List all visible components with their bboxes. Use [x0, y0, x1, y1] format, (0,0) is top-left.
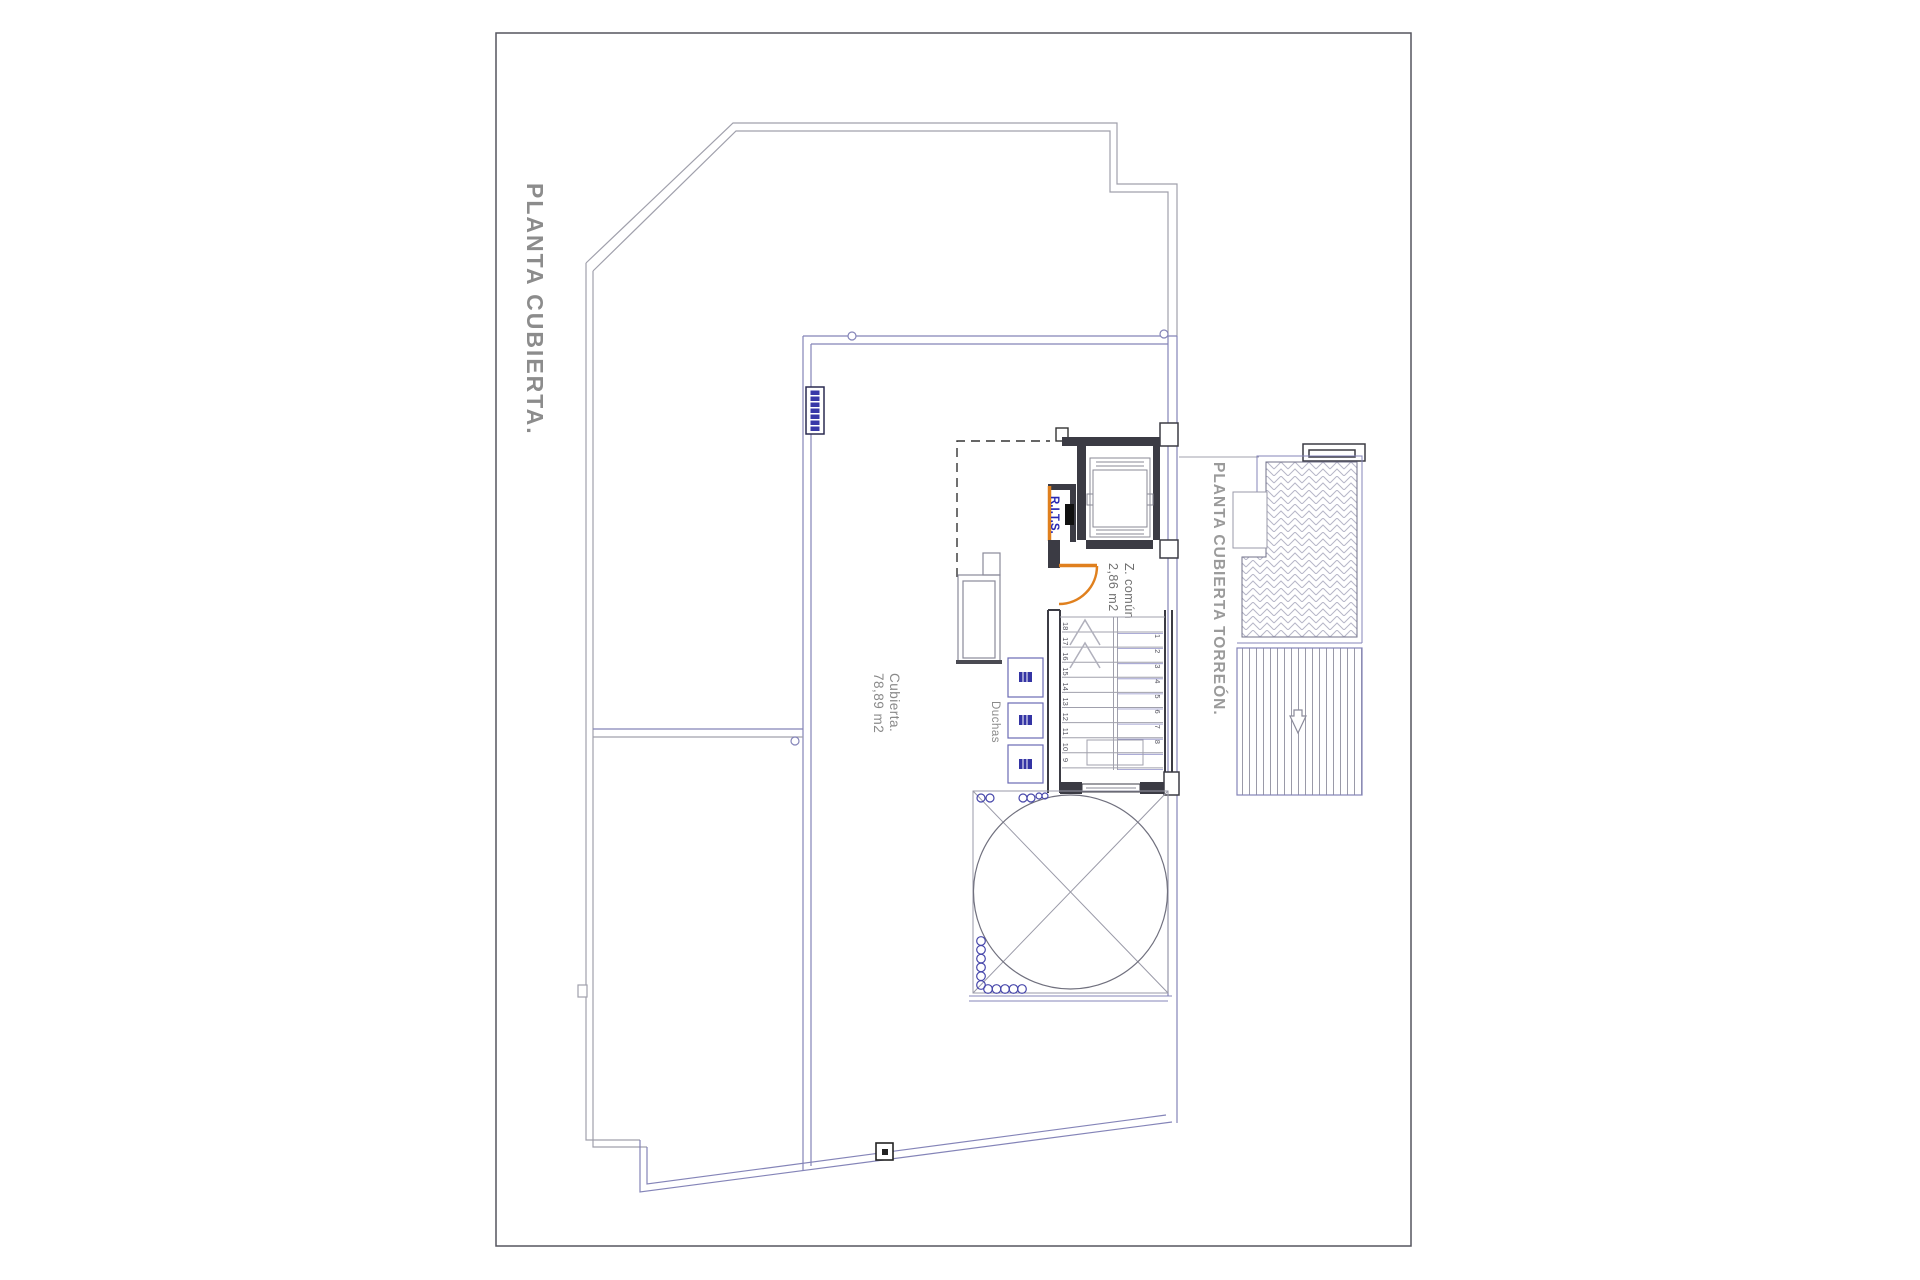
stair-number: 13 [1061, 698, 1070, 706]
vent-grille-cell [811, 397, 820, 402]
shower-drain-icon [1019, 759, 1032, 769]
stair-number: 15 [1061, 667, 1070, 675]
elevator-wall-top [1062, 437, 1160, 446]
stair-number: 17 [1061, 637, 1070, 645]
stair-number: 11 [1061, 728, 1070, 736]
stair-number: 4 [1153, 679, 1162, 683]
shower-drain-icon [1019, 672, 1032, 682]
wall-below-rits [1048, 540, 1060, 568]
stair-number: 8 [1153, 740, 1162, 744]
stair-number: 6 [1153, 710, 1162, 714]
vent-grille-cell [811, 409, 820, 414]
common-zone-name: Z. común [1122, 563, 1136, 619]
bottom-marker [876, 1143, 893, 1160]
drain-dot [882, 1149, 888, 1155]
planter-base-wall [956, 660, 1002, 664]
survey-marker-3 [791, 737, 799, 745]
elevator-wall-bottom [1086, 540, 1153, 549]
stair-number: 3 [1153, 664, 1162, 668]
elevator-pier-top [1160, 423, 1178, 446]
vent-grille [806, 387, 824, 434]
survey-marker-2 [1160, 330, 1168, 338]
floor-plan-svg: PLANTA CUBIERTA. [0, 0, 1920, 1280]
stair-bottom-wall-right [1140, 782, 1164, 794]
elevator-pier-bottom [1160, 540, 1178, 558]
stair-number: 9 [1061, 758, 1070, 762]
stair-number: 1 [1153, 634, 1162, 638]
stair-number: 7 [1153, 725, 1162, 729]
vent-grille-cell [811, 415, 820, 420]
common-zone-size: 2,86 m2 [1106, 563, 1120, 612]
elevator-wall-left [1077, 446, 1086, 540]
sheet-border [496, 33, 1411, 1246]
torreon-void [1233, 492, 1267, 548]
stair-bottom-wall-left [1060, 782, 1082, 794]
vent-grille-cell [811, 391, 820, 396]
stair-number: 2 [1153, 649, 1162, 653]
stair-number: 18 [1061, 622, 1070, 630]
roof-area-size: 78,89 m2 [871, 673, 886, 733]
stair-number: 10 [1061, 743, 1070, 751]
stair-number: 16 [1061, 652, 1070, 660]
stair-number: 5 [1153, 694, 1162, 698]
outline-left-jog [578, 985, 587, 997]
roof-area-name: Cubierta. [887, 673, 902, 732]
stair-pier [1164, 772, 1179, 795]
vent-grille-cell [811, 427, 820, 432]
spa-circle [974, 795, 1168, 989]
survey-marker-1 [848, 332, 856, 340]
stair-number: 12 [1061, 713, 1070, 721]
vent-grille-cell [811, 421, 820, 426]
stair-number: 14 [1061, 682, 1070, 690]
vent-grille-cells [811, 391, 820, 432]
vent-grille-cell [811, 403, 820, 408]
drawing-sheet: PLANTA CUBIERTA. [0, 0, 1920, 1280]
elevator-wall-right [1153, 446, 1160, 540]
cubierta-label: Cubierta. 78,89 m2 [871, 673, 902, 733]
rits-label: R.I.T.S. [1048, 496, 1060, 534]
torreon-title: PLANTA CUBIERTA TORREÓN. [1210, 462, 1228, 716]
plan-title: PLANTA CUBIERTA. [522, 183, 548, 436]
shower-drain-icon [1019, 715, 1032, 725]
duchas-label: Duchas [989, 701, 1001, 743]
rits-door-leaf [1065, 504, 1074, 525]
